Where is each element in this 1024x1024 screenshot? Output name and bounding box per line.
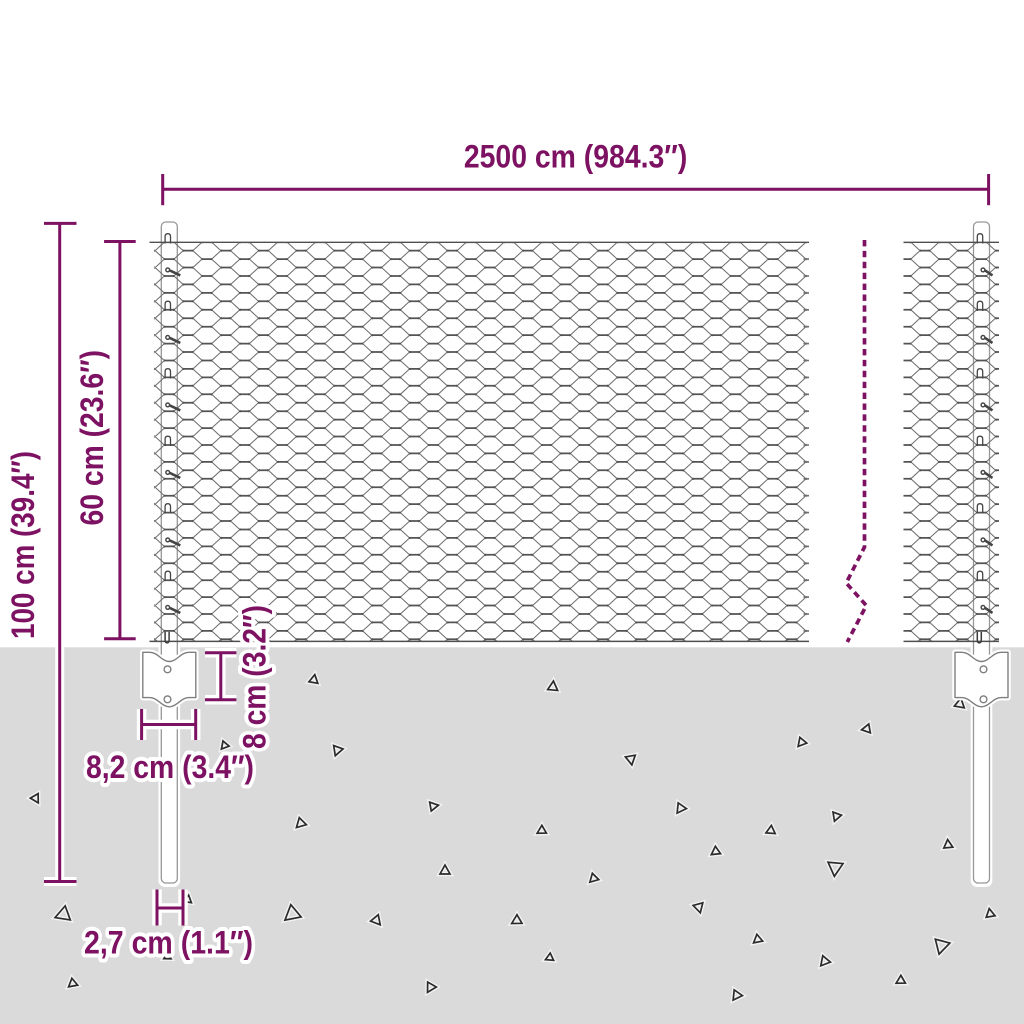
svg-text:8,2 cm (3.4″): 8,2 cm (3.4″)	[86, 749, 254, 785]
svg-text:2,7 cm (1.1″): 2,7 cm (1.1″)	[84, 925, 253, 961]
svg-text:8 cm (3.2″): 8 cm (3.2″)	[237, 605, 273, 749]
svg-text:100 cm (39.4″): 100 cm (39.4″)	[5, 451, 41, 639]
svg-text:60 cm (23.6″): 60 cm (23.6″)	[74, 350, 110, 526]
svg-text:2500 cm (984.3″): 2500 cm (984.3″)	[464, 138, 688, 174]
